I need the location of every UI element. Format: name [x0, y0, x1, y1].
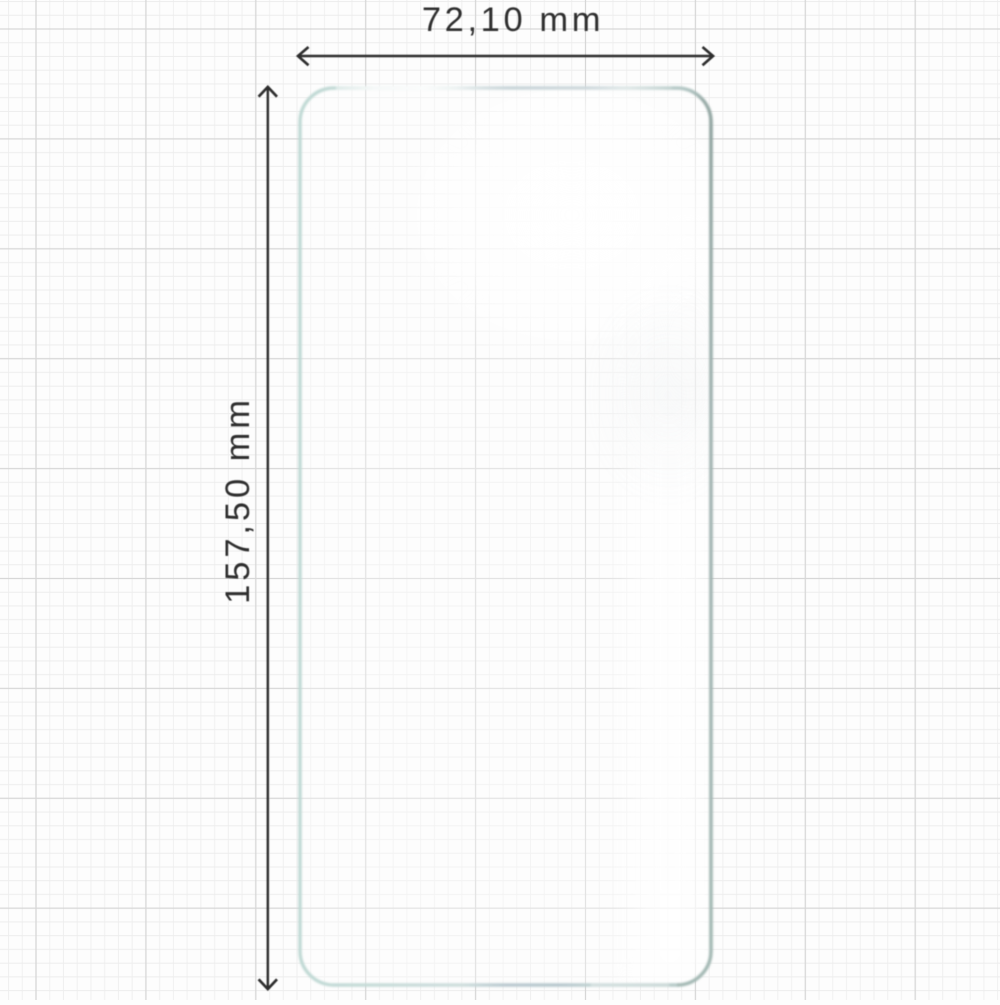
svg-text:157,50 mm: 157,50 mm [219, 396, 257, 604]
svg-text:72,10 mm: 72,10 mm [422, 1, 604, 39]
